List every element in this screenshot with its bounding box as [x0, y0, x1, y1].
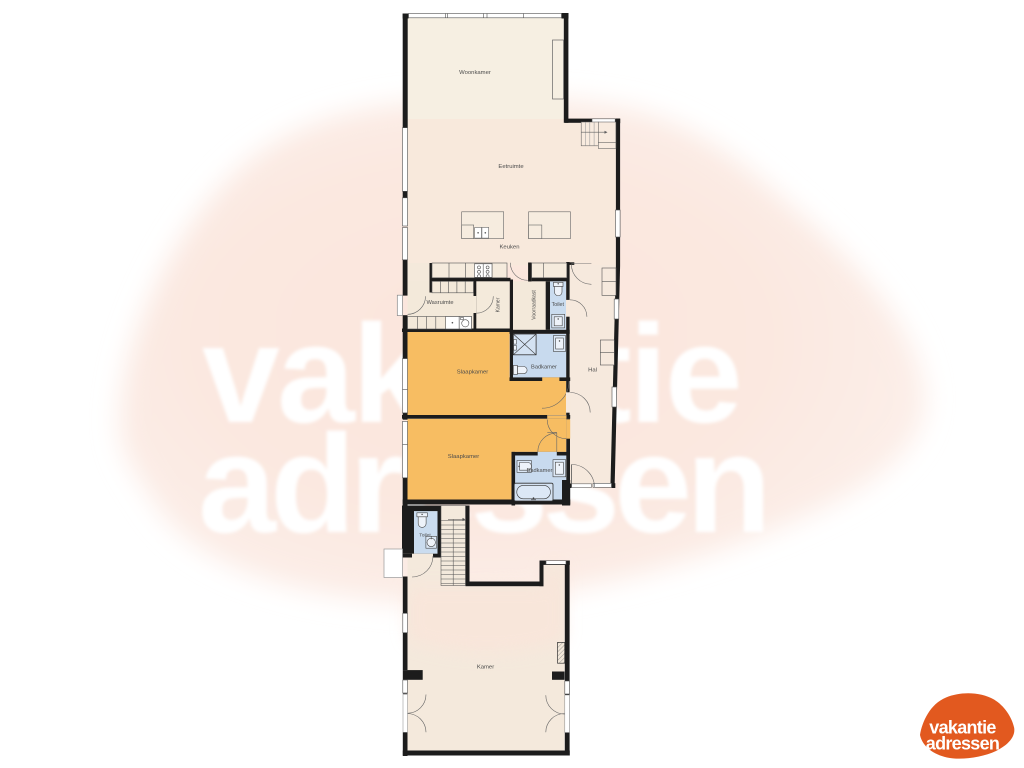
svg-text:Slaapkamer: Slaapkamer	[448, 454, 479, 460]
svg-text:adressen: adressen	[926, 734, 999, 754]
svg-text:Toilet: Toilet	[552, 302, 565, 308]
svg-text:Woonkamer: Woonkamer	[459, 70, 491, 76]
svg-text:Kamer: Kamer	[477, 665, 494, 671]
svg-text:Badkamer: Badkamer	[527, 468, 553, 474]
svg-text:Hal: Hal	[588, 368, 597, 374]
svg-text:Toilet: Toilet	[419, 533, 431, 539]
svg-text:Wasruimte: Wasruimte	[427, 300, 454, 306]
svg-text:Eetruimte: Eetruimte	[498, 164, 524, 170]
svg-text:Kamer: Kamer	[496, 297, 502, 312]
svg-text:Slaapkamer: Slaapkamer	[457, 370, 488, 376]
svg-text:Badkamer: Badkamer	[531, 365, 557, 371]
svg-text:Keuken: Keuken	[500, 245, 520, 251]
svg-text:Voorraadkast: Voorraadkast	[532, 290, 538, 320]
